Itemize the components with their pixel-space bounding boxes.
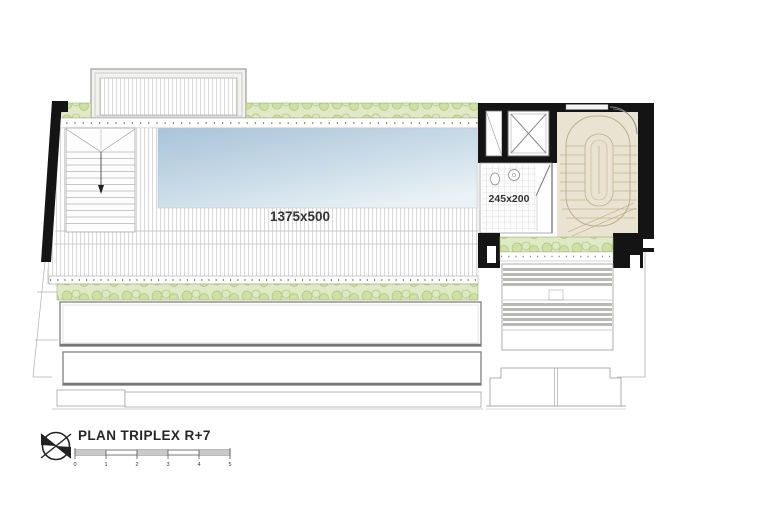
louver-screen [502,264,613,350]
skylight [91,69,246,118]
toilet-icon [491,173,500,185]
scale-tick-label: 2 [135,462,138,468]
sink-icon [509,170,520,181]
bathroom: 245x200 [480,163,552,233]
green-roof-bottom [57,284,478,300]
window [566,105,608,110]
balcony-lower [63,352,481,385]
terrace-base [52,390,483,409]
floor-plan-canvas: 1375x500 [0,0,760,508]
pool-dimension-label: 1375x500 [270,209,330,224]
elevator [508,111,549,156]
stepped-balcony [486,368,626,409]
balcony-upper [60,302,481,346]
bathroom-dimension-label: 245x200 [489,193,530,205]
stair-room [557,103,640,238]
scale-tick-label: 1 [104,462,107,468]
scale-tick-label: 3 [166,462,169,468]
plan-title: PLAN TRIPLEX R+7 [78,428,211,443]
straight-staircase [66,128,135,232]
pool [158,128,477,208]
scale-tick-label: 4 [197,462,200,468]
green-roof-top [246,103,478,118]
exterior-wall-right [638,103,654,252]
scale-tick-label: 5 [228,462,231,468]
deck-edge-bottom [49,276,478,284]
deck-edge-top [57,118,478,128]
scale-tick-label: 0 [73,462,76,468]
elevator-core [478,103,557,163]
green-roof-right [500,237,613,252]
